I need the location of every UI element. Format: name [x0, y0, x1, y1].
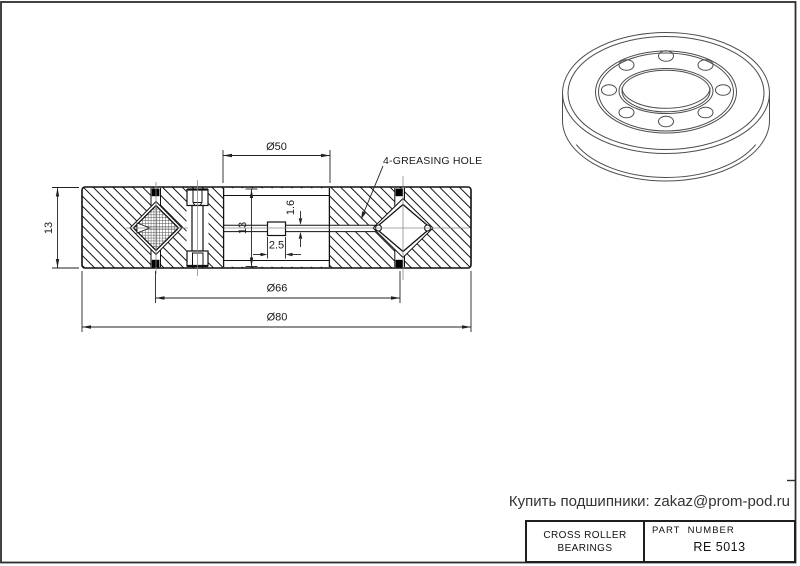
title-block-product: CROSS ROLLER BEARINGS — [527, 522, 645, 561]
greasing-hole-note: 4-GREASING HOLE — [383, 155, 482, 167]
product-line2: BEARINGS — [558, 542, 613, 555]
part-number-label: PART NUMBER — [652, 525, 787, 536]
title-block-part-number-cell: PART NUMBER RE 5013 — [645, 522, 794, 561]
greasing-hole-section — [268, 222, 286, 236]
outer-wall — [563, 93, 770, 181]
section-view: 13 Ø50 13 1.6 2.5 Ø66 Ø80 4-GREASING HOL… — [43, 141, 482, 332]
bore-inner-wall — [622, 88, 710, 109]
dim-height-left — [52, 188, 79, 269]
product-line1: CROSS ROLLER — [543, 529, 626, 542]
contact-text: Купить подшипники: zakaz@prom-pod.ru — [509, 493, 790, 510]
dim-height-left-label: 13 — [43, 222, 55, 234]
sheet-frame — [1, 2, 796, 563]
dim-inner-height-label: 13 — [237, 222, 249, 234]
drawing-sheet: 13 Ø50 13 1.6 2.5 Ø66 Ø80 4-GREASING HOL… — [0, 0, 800, 566]
seal-top-right — [396, 189, 404, 197]
dim-roller-pitch-label: Ø66 — [267, 283, 288, 295]
title-block: CROSS ROLLER BEARINGS PART NUMBER RE 501… — [525, 520, 796, 563]
dim-outer-diameter-label: Ø80 — [267, 312, 288, 324]
mounting-holes — [602, 51, 731, 127]
dim-bore — [223, 150, 330, 183]
dim-bore-label: Ø50 — [266, 141, 287, 153]
isometric-view — [563, 33, 770, 182]
part-number-value: RE 5013 — [652, 540, 787, 554]
dim-grease-hole-width-label: 2.5 — [269, 240, 284, 252]
dim-grease-hole-height-label: 1.6 — [285, 200, 297, 215]
seal-bottom-right — [396, 260, 404, 268]
drawing-canvas: 13 Ø50 13 1.6 2.5 Ø66 Ø80 4-GREASING HOL… — [0, 0, 800, 566]
